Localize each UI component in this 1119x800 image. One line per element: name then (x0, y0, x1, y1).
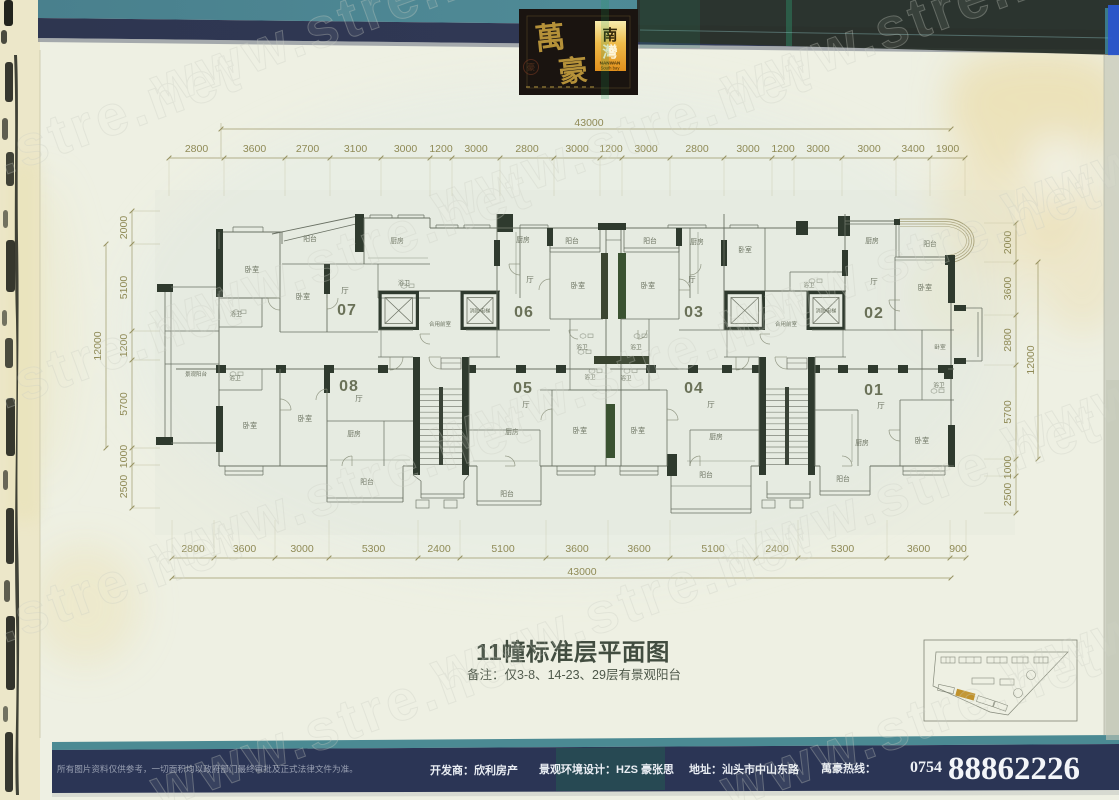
svg-text:厅: 厅 (355, 394, 363, 403)
svg-text:1200: 1200 (771, 143, 795, 155)
svg-text:2400: 2400 (427, 543, 451, 555)
svg-text:厅: 厅 (526, 275, 534, 284)
svg-text:厅: 厅 (688, 275, 696, 284)
svg-text:卧室: 卧室 (571, 281, 585, 290)
svg-text:消防电梯: 消防电梯 (470, 307, 491, 315)
svg-text:阳台: 阳台 (500, 489, 514, 498)
svg-text:3600: 3600 (907, 543, 931, 555)
svg-text:萬: 萬 (533, 21, 566, 57)
svg-text:5700: 5700 (118, 392, 130, 416)
svg-text:900: 900 (949, 543, 967, 555)
svg-text:5100: 5100 (118, 276, 130, 300)
svg-text:厅: 厅 (707, 400, 715, 409)
svg-text:浴卫: 浴卫 (398, 279, 410, 287)
svg-text:3000: 3000 (736, 143, 760, 155)
svg-text:3000: 3000 (290, 543, 314, 555)
svg-text:2000: 2000 (118, 216, 130, 240)
svg-text:卧室: 卧室 (641, 281, 655, 290)
svg-text:3000: 3000 (394, 143, 418, 155)
svg-text:07: 07 (337, 302, 357, 319)
svg-text:景观阳台: 景观阳台 (185, 370, 208, 378)
svg-text:卧室: 卧室 (631, 426, 645, 435)
svg-text:0754: 0754 (910, 759, 942, 776)
svg-text:3000: 3000 (806, 143, 830, 155)
svg-text:02: 02 (864, 305, 884, 322)
svg-text:3600: 3600 (243, 143, 267, 155)
svg-text:1200: 1200 (429, 143, 453, 155)
svg-text:合用前室: 合用前室 (429, 320, 452, 328)
svg-text:豪: 豪 (557, 53, 589, 90)
svg-text:阳台: 阳台 (565, 236, 579, 245)
svg-text:卧室: 卧室 (738, 245, 752, 254)
svg-text:豪: 豪 (527, 62, 535, 72)
svg-text:卧室: 卧室 (915, 436, 929, 445)
svg-text:卧室: 卧室 (298, 414, 312, 423)
svg-text:阳台: 阳台 (643, 236, 657, 245)
svg-text:3100: 3100 (344, 143, 368, 155)
svg-text:88862226: 88862226 (948, 751, 1080, 787)
svg-text:01: 01 (864, 382, 884, 399)
svg-text:卧室: 卧室 (573, 426, 587, 435)
svg-text:厨房: 厨房 (709, 432, 723, 441)
svg-text:2500: 2500 (118, 475, 130, 499)
svg-text:厅: 厅 (877, 401, 885, 410)
svg-text:3400: 3400 (901, 143, 925, 155)
svg-text:2700: 2700 (296, 143, 320, 155)
svg-text:1900: 1900 (936, 143, 960, 155)
svg-text:厨房: 厨房 (855, 438, 869, 447)
svg-text:3000: 3000 (857, 143, 881, 155)
svg-text:浴卫: 浴卫 (933, 381, 945, 389)
svg-text:开发商：欣利房产: 开发商：欣利房产 (430, 763, 518, 777)
svg-text:2800: 2800 (1002, 328, 1014, 352)
svg-text:5300: 5300 (362, 543, 386, 555)
svg-text:景观环境设计：HZS 豪张思: 景观环境设计：HZS 豪张思 (538, 762, 674, 776)
svg-text:06: 06 (514, 304, 534, 321)
svg-text:卧室: 卧室 (243, 421, 257, 430)
svg-text:1000: 1000 (118, 445, 130, 469)
svg-text:43000: 43000 (567, 566, 596, 578)
svg-text:2800: 2800 (185, 143, 209, 155)
svg-text:厨房: 厨房 (347, 429, 361, 438)
svg-text:阳台: 阳台 (699, 470, 713, 479)
svg-text:3600: 3600 (627, 543, 651, 555)
svg-text:08: 08 (339, 378, 359, 395)
svg-text:5100: 5100 (491, 543, 515, 555)
svg-text:厨房: 厨房 (516, 235, 530, 244)
svg-text:卧室: 卧室 (934, 343, 946, 351)
svg-text:厨房: 厨房 (690, 237, 704, 246)
svg-text:3600: 3600 (565, 543, 589, 555)
svg-text:12000: 12000 (1025, 345, 1037, 374)
svg-text:04: 04 (684, 380, 704, 397)
svg-text:3600: 3600 (1002, 277, 1014, 301)
